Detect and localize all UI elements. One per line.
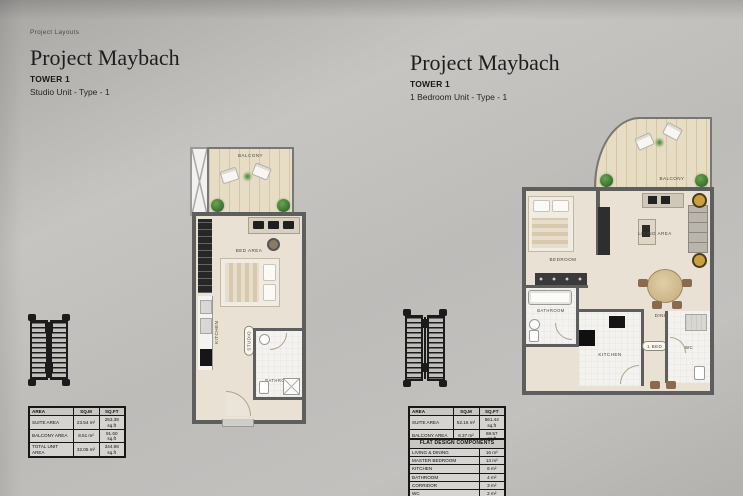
sofa-cushion: [253, 221, 264, 229]
sofa-cushion: [661, 196, 670, 204]
row-label: CORRIDOR: [409, 481, 479, 489]
right-header: Project Maybach TOWER 1 1 Bedroom Unit -…: [410, 51, 560, 102]
col-header-sqft: SQ.FT: [479, 407, 505, 416]
table-row: MASTER BEDROOM 13 m²: [409, 457, 505, 465]
row-sqft: 344.98 sq.ft: [99, 443, 125, 457]
side-table: [692, 193, 707, 208]
table-row: TOTAL UNIT AREA 32.05 m² 344.98 sq.ft: [29, 443, 125, 457]
one-bed-tag: 1 BED: [642, 341, 667, 351]
dining-chair: [666, 381, 676, 389]
row-sqm: 8.51 m²: [73, 429, 99, 443]
door-swing: [555, 323, 572, 340]
bathtub: [528, 290, 572, 305]
pillow: [533, 200, 550, 212]
bed-blanket: [532, 218, 568, 248]
row-value: 2 m²: [479, 490, 505, 496]
table-row: KITCHEN 6 m²: [409, 465, 505, 473]
col-header-area: AREA: [29, 407, 73, 416]
studio-bathroom: BATHROOM: [253, 328, 302, 400]
row-value: 3 m²: [479, 481, 505, 489]
pillow: [263, 284, 276, 301]
row-label: SUITE AREA: [409, 416, 453, 430]
breadcrumb: Project Layouts: [30, 29, 180, 36]
kitchen-unit: [200, 318, 212, 334]
one-bed-balcony: BALCONY: [594, 117, 712, 189]
sofa: [688, 205, 708, 253]
row-sqm: 32.05 m²: [73, 443, 99, 457]
plant-icon: [695, 174, 708, 187]
kitchen-counter: [198, 296, 213, 370]
col-header-area: AREA: [409, 407, 453, 416]
vanity-cabinet: [685, 314, 707, 331]
bed-area-label: BED AREA: [220, 248, 278, 253]
lounge-chair: [634, 132, 655, 151]
one-bed-kitchen: KITCHEN: [579, 309, 644, 386]
dining-chair: [672, 301, 682, 309]
row-value: 16 m²: [479, 448, 505, 456]
studio-floorplan: BALCONY BED AREA: [188, 141, 302, 418]
page: Project Layouts Project Maybach TOWER 1 …: [0, 0, 743, 496]
table-row: SUITE AREA 23.54 m² 253.38 sq.ft: [29, 416, 125, 430]
x-brace-icon: [192, 149, 207, 214]
dining-chair: [652, 301, 662, 309]
bed-blanket: [225, 263, 259, 302]
pillow: [552, 200, 569, 212]
row-label: KITCHEN: [409, 465, 479, 473]
dining-table: [647, 269, 683, 303]
dining-chair: [638, 279, 648, 287]
dining-chair: [682, 279, 692, 287]
plant-icon: [600, 174, 613, 187]
studio-unit-body: BED AREA KITCHEN STUDIO BATHROOM: [192, 212, 306, 424]
stove: [609, 316, 625, 328]
one-bed-bathroom: BATHROOM: [526, 288, 579, 347]
sofa-cushion: [648, 196, 657, 204]
plant-sprig-icon: [654, 137, 665, 148]
row-value: 4 m²: [479, 473, 505, 481]
entry-step: [222, 419, 254, 427]
left-header: Project Layouts Project Maybach TOWER 1 …: [30, 29, 180, 97]
toilet: [259, 381, 269, 394]
row-label: MASTER BEDROOM: [409, 457, 479, 465]
kitchen-label: KITCHEN: [214, 312, 219, 352]
one-bed-floorplan: BALCONY BEDROOM: [522, 117, 712, 389]
row-sqm: 52.16 m²: [453, 416, 479, 430]
sofa: [248, 217, 300, 234]
right-unit-type: 1 Bedroom Unit - Type - 1: [410, 92, 560, 102]
left-tower-label: TOWER 1: [30, 74, 180, 84]
row-sqft: 91.60 sq.ft: [99, 429, 125, 443]
lounge-chair: [219, 167, 239, 185]
one-bed-wc: WC: [665, 311, 710, 383]
plant-sprig-icon: [242, 171, 253, 182]
bedroom-label: BEDROOM: [534, 257, 592, 262]
studio-area-table: AREA SQ.M SQ.FT SUITE AREA 23.54 m² 253.…: [28, 406, 126, 458]
dining-chair: [650, 381, 660, 389]
col-header-sqm: SQ.M: [73, 407, 99, 416]
stove: [200, 349, 212, 366]
pillow: [263, 264, 276, 281]
row-sqft: 561.44 sq.ft: [479, 416, 505, 430]
bench-sofa: [642, 193, 684, 208]
door-swing: [270, 333, 287, 350]
entry-door-swing: [226, 391, 251, 416]
studio-balcony: BALCONY: [207, 147, 294, 214]
balcony-label: BALCONY: [209, 153, 292, 158]
kitchen-label: KITCHEN: [579, 352, 641, 357]
row-label: BATHROOM: [409, 473, 479, 481]
wardrobe: [198, 219, 212, 293]
plant-icon: [211, 199, 224, 212]
lounge-chair: [251, 162, 272, 180]
col-header-sqft: SQ.FT: [99, 407, 125, 416]
right-tower-label: TOWER 1: [410, 79, 560, 89]
row-sqm: 23.54 m²: [73, 416, 99, 430]
sofa-cushion: [283, 221, 294, 229]
left-unit-type: Studio Unit - Type - 1: [30, 87, 180, 97]
kitchen-sink: [200, 300, 212, 314]
table-row: CORRIDOR 3 m²: [409, 481, 505, 489]
staircase-icon: [402, 309, 448, 387]
washbasin: [259, 334, 270, 345]
flat-components-table: FLAT DESIGN COMPONENTS LIVING & DINING 1…: [408, 438, 506, 496]
components-table-title: FLAT DESIGN COMPONENTS: [409, 439, 505, 448]
staircase-icon: [27, 314, 71, 386]
lounge-chair: [662, 122, 683, 141]
sofa-cushion: [268, 221, 279, 229]
washbasin: [529, 319, 540, 330]
bed: [528, 196, 574, 252]
row-label: WC: [409, 490, 479, 496]
bed: [220, 258, 280, 307]
right-page-title: Project Maybach: [410, 51, 560, 74]
table-row: LIVING & DINING 16 m²: [409, 448, 505, 456]
row-label: TOTAL UNIT AREA: [29, 443, 73, 457]
side-table: [692, 253, 707, 268]
left-page-title: Project Maybach: [30, 46, 180, 69]
table-row: SUITE AREA 52.16 m² 561.44 sq.ft: [409, 416, 505, 430]
toilet: [529, 330, 539, 342]
plant-icon: [277, 199, 290, 212]
tv-console: [598, 207, 610, 255]
row-label: LIVING & DINING: [409, 448, 479, 456]
door-swing: [670, 337, 686, 353]
row-label: SUITE AREA: [29, 416, 73, 430]
shower: [283, 378, 300, 395]
col-header-sqm: SQ.M: [453, 407, 479, 416]
bathroom-label: BATHROOM: [526, 308, 576, 313]
one-bed-unit-body: BEDROOM LIVING AREA DINING: [522, 187, 714, 395]
table-row: BALCONY AREA 8.51 m² 91.60 sq.ft: [29, 429, 125, 443]
kitchen-island: [579, 330, 595, 346]
toilet: [694, 366, 705, 380]
table-row: BATHROOM 4 m²: [409, 473, 505, 481]
table-row: WC 2 m²: [409, 490, 505, 496]
row-value: 6 m²: [479, 465, 505, 473]
row-sqft: 253.38 sq.ft: [99, 416, 125, 430]
entry-door-swing: [620, 365, 639, 384]
dresser: [535, 273, 587, 285]
row-value: 13 m²: [479, 457, 505, 465]
row-label: BALCONY AREA: [29, 429, 73, 443]
living-area-label: LIVING AREA: [622, 231, 688, 236]
